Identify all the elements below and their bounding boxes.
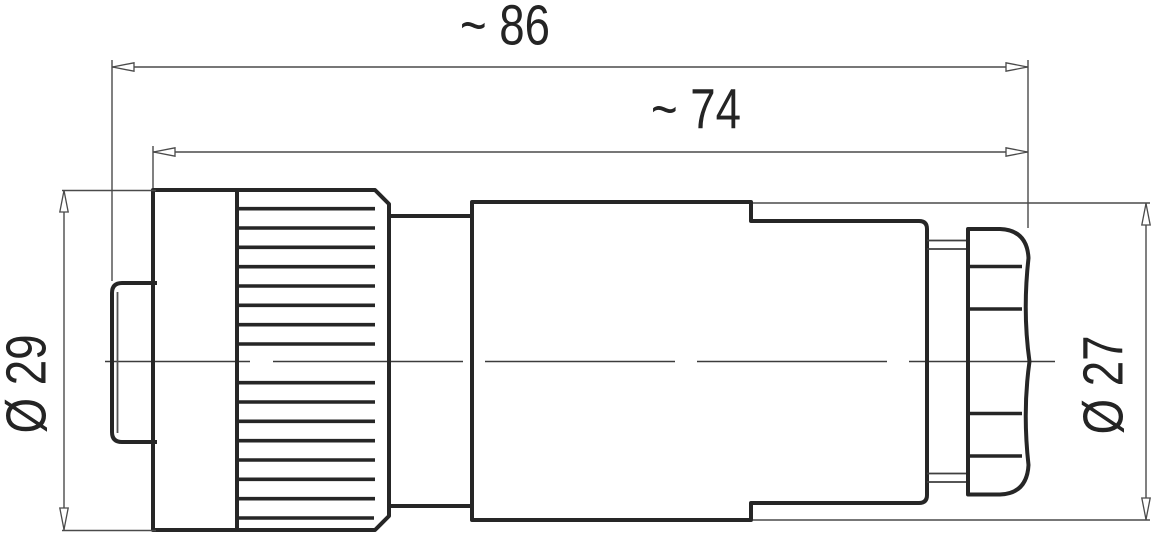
dim-label-rear-diameter: Ø 27 bbox=[1076, 336, 1133, 435]
arrow-front-dia-top bbox=[60, 191, 68, 213]
dimension-arrows bbox=[60, 63, 1150, 530]
dim-label-body-length: ~ 74 bbox=[651, 82, 741, 139]
arrow-overall-left bbox=[113, 63, 135, 71]
arrow-front-dia-bottom bbox=[60, 508, 68, 530]
knurl-lines bbox=[237, 209, 375, 518]
dim-label-overall-length: ~ 86 bbox=[460, 0, 550, 55]
dim-label-front-diameter: Ø 29 bbox=[0, 335, 56, 434]
arrow-body-right bbox=[1006, 148, 1028, 156]
arrow-rear-dia-top bbox=[1142, 204, 1150, 226]
arrow-body-left bbox=[154, 148, 176, 156]
dimension-lines bbox=[62, 60, 1150, 531]
ext-lines-front-diameter bbox=[62, 191, 156, 531]
drawing-canvas bbox=[0, 0, 1152, 534]
connector-technical-drawing: ~ 86 ~ 74 Ø 29 Ø 27 bbox=[0, 0, 1152, 534]
front-cap bbox=[112, 283, 157, 442]
arrow-rear-dia-bottom bbox=[1142, 498, 1150, 520]
arrow-overall-right bbox=[1006, 63, 1028, 71]
